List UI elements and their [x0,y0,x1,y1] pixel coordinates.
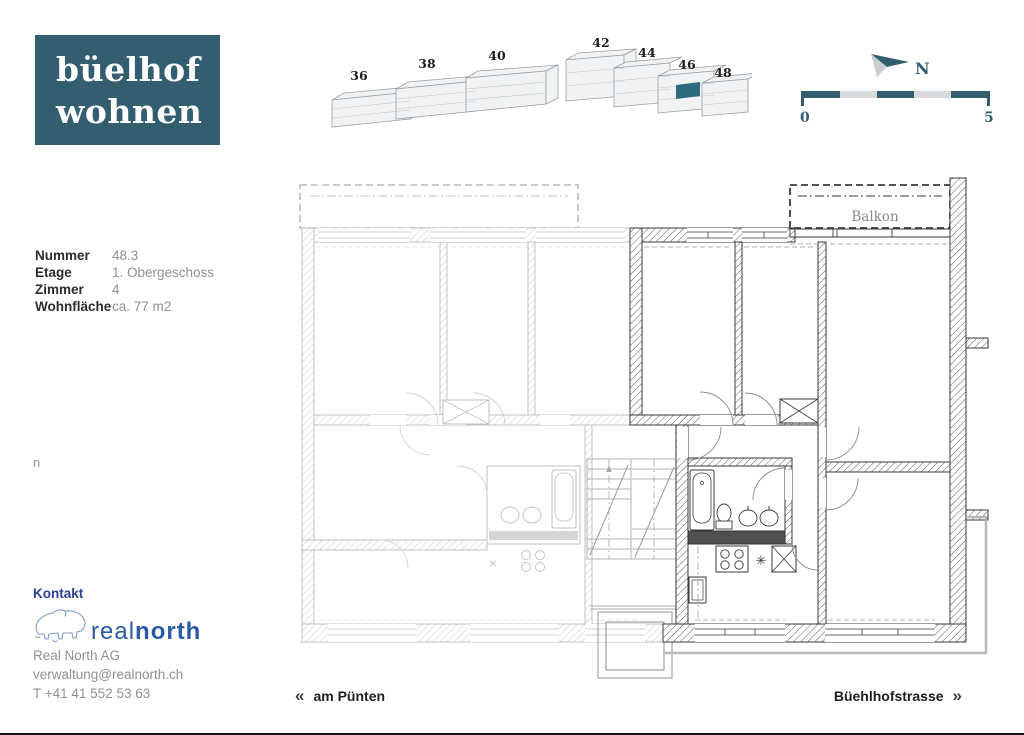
brand-logo-line2: wohnen [56,91,220,133]
toilet-icon [716,504,732,529]
building-number: 46 [678,57,696,72]
scale-bar: 0 5 [800,91,994,126]
unit-info-row: Zimmer 4 [35,281,214,298]
unit-info-value: ca. 77 m2 [112,298,171,315]
scale-end-label: 5 [984,110,994,126]
balcony-label: Balkon [851,209,899,225]
vanity-counter [688,531,785,544]
compass-and-scalebar: N 0 5 [793,38,1003,128]
highlighted-unit-marker [676,82,700,99]
contact-block: Kontakt realnorth Real North AG verwaltu… [33,584,201,703]
realnorth-logo: realnorth [33,604,201,644]
appliance-symbol: ✳ [756,553,767,568]
polar-bear-logo-icon [33,604,89,644]
chevrons-right-icon: » [953,689,962,703]
unit-info-label: Etage [35,264,112,281]
building-number: 36 [350,68,368,83]
north-label: N [915,59,930,78]
street-nav-right: Büehlhofstrasse » [834,688,962,704]
realnorth-bold: north [135,618,201,645]
building-number: 40 [488,48,506,63]
street-label-right: Büehlhofstrasse [834,688,944,704]
realnorth-wordmark: realnorth [91,620,201,644]
unit-info-label: Zimmer [35,281,112,298]
street-label-left: am Pünten [313,688,385,704]
building-number: 44 [638,45,656,60]
unit-info-value: 48.3 [112,247,138,264]
shaft-box [780,399,818,423]
selected-apartment: Balkon [630,178,988,653]
stove-icon [716,546,748,572]
balcony: Balkon [790,185,950,228]
building-number: 48 [714,65,732,80]
floor-plan: × Balkon [280,165,1010,685]
unit-info-label: Nummer [35,247,112,264]
building-number: 38 [418,56,436,71]
unit-info-row: Nummer 48.3 [35,247,214,264]
building-number: 42 [592,35,609,50]
contact-company: Real North AG [33,646,201,665]
washbasin-icons [739,506,778,526]
kitchen-cabinet-box [689,577,706,603]
unit-info-row: Wohnfläche ca. 77 m2 [35,298,214,315]
brand-logo-line1: büelhof [56,49,220,91]
brand-logo: büelhof wohnen [35,35,220,145]
north-arrow-icon: N [871,54,930,78]
realnorth-regular: real [91,618,135,645]
unit-info-row: Etage 1. Obergeschoss [35,264,214,281]
contact-heading: Kontakt [33,584,201,603]
scale-start-label: 0 [800,110,810,126]
bathtub-icon [690,470,714,530]
unit-info-label: Wohnfläche [35,298,112,315]
kitchen: ✳ [689,546,796,620]
contact-email: verwaltung@realnorth.ch [33,665,201,684]
faded-cross-symbol: × [489,555,497,571]
chevrons-left-icon: « [295,689,304,703]
stairwell [587,459,676,559]
adjacent-apartment-faded: × [300,185,676,642]
unit-info-block: Nummer 48.3 Etage 1. Obergeschoss Zimmer… [35,247,214,315]
unit-info-value: 4 [112,281,120,298]
contact-phone: T +41 41 552 53 63 [33,684,201,703]
bathroom [688,470,785,544]
street-nav-left: « am Pünten [295,688,385,704]
site-plan-isometric: 36 38 40 42 44 46 48 [318,26,752,130]
stray-note: n [33,455,40,470]
unit-info-value: 1. Obergeschoss [112,264,214,281]
floorplan-factsheet-page: { "brand": { "line1": "büelhof", "line2"… [0,0,1024,735]
